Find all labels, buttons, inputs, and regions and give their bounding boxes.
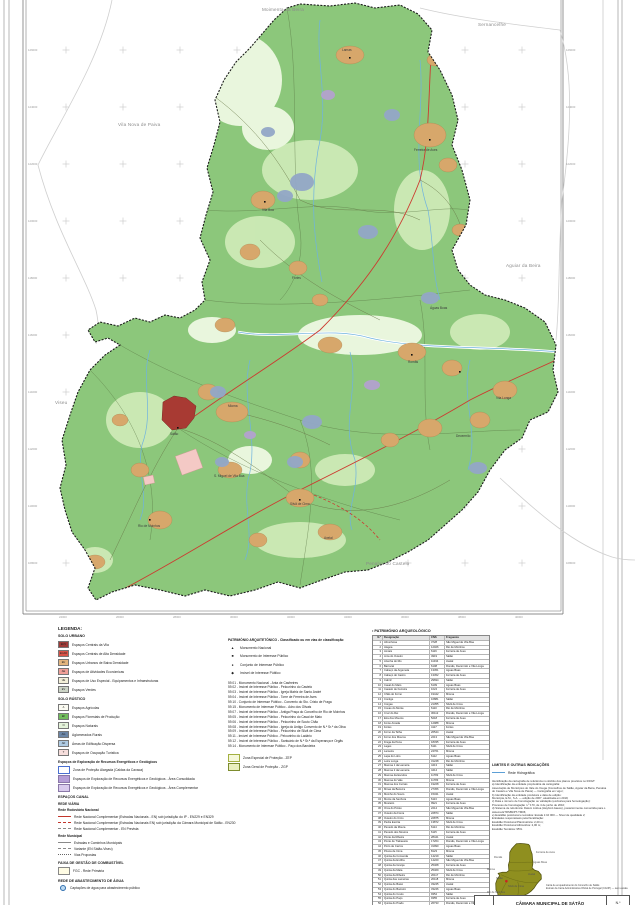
legend-label: Espaços Verdes [72, 688, 96, 692]
heritage-symbol-icon: ● [228, 663, 237, 667]
table-row: 27Mamoa 1 da Lameira4413Sátão [373, 763, 489, 768]
locator-label: Ferreira de Aves [536, 851, 555, 854]
legend-item: Rede Nacional Complementar - EN Prevista [58, 826, 228, 832]
table-row: 51Quinta das Lameiras20118Mioma [373, 877, 489, 882]
legend-item: Rede Hidrográfica [492, 769, 612, 776]
table-row: 44Porto de Carros31990Águas Boas [373, 844, 489, 849]
locator-label: Romãs [494, 856, 502, 859]
table-row: 11Castelo de Ferreira1024Ferreira de Ave… [373, 687, 489, 692]
legend-label: Rede Nacional Complementar - EN Prevista [74, 827, 139, 831]
legend-label: Espaços Agrícolas [72, 706, 99, 710]
legend-item: ECAD Espaços Centrais de Alta Densidade [58, 649, 228, 658]
table-row: 10Casal do Mato6109Águas Boas [373, 683, 489, 688]
legend-solo-rustico-title: SOLO RÚSTICO [58, 697, 228, 701]
water-capture-icon [60, 885, 66, 891]
locator-map [496, 844, 542, 899]
table-row: 35Mosteiro9921Ferreira de Aves [373, 801, 489, 806]
table-row: 29Mamoa da Esculca11782Silvã de Cima [373, 773, 489, 778]
table-row: 45Póvoa de Cima8123Mioma [373, 849, 489, 854]
place-label: Lamas [342, 48, 352, 52]
place-label: Ferreira de Aves [414, 148, 437, 152]
legend-column: LEGENDA: SOLO URBANO ECV Espaços Centrai… [58, 626, 228, 891]
locator-label: Silvã de Cima [508, 885, 524, 888]
heritage-symbol-label: Conjunto de Interesse Público [240, 663, 284, 667]
coord-label-bottom: 28000 [173, 615, 181, 619]
coord-label-right: 124000 [566, 105, 575, 109]
legend-title: LEGENDA: [58, 626, 228, 631]
table-row: 17Eira dos Mouros5218Ferreira de Aves [373, 716, 489, 721]
legend-municipal-title: Rede Municipal [58, 834, 228, 838]
table-row: 19Forles4117Forles [373, 725, 489, 730]
table-row: 47Quinta da Ervilha14220São Miguel de Vi… [373, 858, 489, 863]
coord-label-right: 118000 [566, 276, 575, 280]
heritage-symbol-icon: ◆ [228, 671, 237, 675]
zone-swatch [228, 754, 240, 762]
table-row: 41Penedo dos Mouros6115Ferreira de Aves [373, 830, 489, 835]
table-row: 33Moinho do Souto15341Avelal [373, 792, 489, 797]
road-line-swatch [58, 828, 71, 829]
table-row: 14Corgas21355Silvã de Cima [373, 702, 489, 707]
title-block-logo-cell [475, 896, 494, 905]
archaeology-table: N.º Designação CNS Freguesia 1Abrunhosa3… [372, 635, 490, 905]
table-row: 16Cruz do Rei30112Romãs, Decermilo e Vil… [373, 711, 489, 716]
heritage-symbol-label: Monumento de Interesse Público [240, 654, 288, 658]
coord-label-left: 122000 [28, 162, 37, 166]
legend-item: EU Espaços Urbanos de Baixa Densidade [58, 658, 228, 667]
legend-fgc-title: FAIXA DE GESTÃO DE COMBUSTÍVEL [58, 861, 228, 865]
heritage-symbol-row: ▲ Monumento Nacional [228, 644, 370, 653]
table-row: 54Quinta do Couto9354Sátão [373, 892, 489, 897]
table-row: 48Quinta da Granja25468Ferreira de Aves [373, 863, 489, 868]
table-header: N.º Designação CNS Freguesia [373, 636, 489, 640]
table-row: 4Arca do Outeiro4919Sátão [373, 654, 489, 659]
legend-item: EV Espaços Verdes [58, 685, 228, 694]
coord-label-bottom: 38000 [458, 615, 466, 619]
table-row: 28Mamoa 2 da Lameira4414Sátão [373, 768, 489, 773]
coord-label-right: 122000 [566, 162, 575, 166]
coord-label-bottom: 30000 [230, 615, 238, 619]
legend-swatch: ECAD [58, 650, 69, 657]
limits-column: LIMITES E OUTRAS INDICAÇÕES Rede Hidrogr… [492, 763, 612, 831]
table-row: 1Abrunhosa3728São Miguel de Vila Boa [373, 640, 489, 645]
neighbor-label: Sernancelhe [478, 22, 506, 27]
locator-label: Avelal [528, 873, 535, 876]
road-line-swatch [58, 848, 71, 849]
archaeology-title: • PATRIMÓNIO ARQUEOLÓGICO [372, 629, 490, 633]
heritage-zone-row: Zona Especial de Proteção - ZEP [228, 754, 370, 763]
coord-label-right: 112000 [566, 447, 575, 451]
legend-swatch [58, 784, 70, 792]
road-line-swatch [58, 854, 71, 855]
legend-swatch: A [58, 704, 69, 711]
table-row: 38Outeiro do Circo22875Mioma [373, 816, 489, 821]
heritage-symbol-row: ■ Monumento de Interesse Público [228, 652, 370, 661]
legend-label: Espaços de Uso Especial - Equipamentos e… [72, 679, 158, 683]
legend-label: Rede Nacional Complementar (Estradas Nac… [74, 821, 235, 825]
legend-label: Variante (EN Sátão-Viseu) [74, 847, 113, 851]
legend-item: A Espaços Agrícolas [58, 703, 228, 712]
heritage-title: PATRIMÓNIO ARQUITETÓNICO - Classificado … [228, 638, 370, 642]
title-block-number-cell: N.º [606, 896, 629, 905]
legend-item: Vias Propostas [58, 852, 228, 858]
table-row: 40Penedo da Moura6114Rio de Moinhos [373, 825, 489, 830]
table-row: 8Cabeço do Castro13452Ferreira de Aves [373, 673, 489, 678]
legend-swatch [58, 867, 70, 875]
cartography-note-line: Exatidão Temática: 95%. [492, 828, 610, 831]
legend-label: Espaços Urbanos de Baixa Densidade [72, 661, 128, 665]
table-row: 36Orca do Picoto2214São Miguel de Vila B… [373, 806, 489, 811]
table-row: 53Quinta do Barreiro33246Águas Boas [373, 887, 489, 892]
legend-item: Espaços de Exploração de Recursos Energé… [58, 783, 228, 792]
coord-label-bottom: 34000 [344, 615, 352, 619]
legend-canal-title: ESPAÇOS CANAL [58, 795, 228, 799]
zone-label: Zona Especial de Proteção - ZEP [243, 756, 292, 760]
legend-swatch: T [58, 749, 69, 756]
legend-label: Espaços Centrais de Alta Densidade [72, 652, 126, 656]
place-label: Decermilo [456, 434, 470, 438]
legend-label: Rede Nacional Complementar (Estradas Nac… [74, 815, 214, 819]
table-row: 13Contige16881Sátão [373, 697, 489, 702]
coord-label-left: 126000 [28, 48, 37, 52]
coord-label-left: 114000 [28, 390, 37, 394]
table-row: 2Alagoa12026Rio de Moinhos [373, 645, 489, 650]
legend-swatch [58, 775, 70, 783]
table-row: 46Quinta da Comenda14219Sátão [373, 854, 489, 859]
legend-swatch: ECV [58, 641, 69, 648]
legend-swatch: AG [58, 731, 69, 738]
table-row: 52Quinta de Baixo33245Avelal [373, 882, 489, 887]
table-row: 7Cabeço da Argemela13451Águas Boas [373, 668, 489, 673]
coord-label-right: 116000 [566, 333, 575, 337]
table-row: 31Mamoa dos Currais19228Ferreira de Aves [373, 782, 489, 787]
locator-caption: Carta de enquadramento do Concelho de Sá… [546, 884, 636, 890]
legend-label: Espaços de Atividades Económicas [72, 670, 124, 674]
table-row: 26Leira Longa31248Rio de Moinhos [373, 759, 489, 764]
legend-swatch: AD [58, 740, 69, 747]
coord-label-bottom: 24000 [59, 615, 67, 619]
neighbor-label: Viseu [55, 400, 67, 405]
road-line-swatch [58, 816, 71, 817]
legend-label: Espaços de Exploração de Recursos Energé… [73, 786, 198, 790]
locator-label: Águas Boas [533, 861, 547, 864]
heritage-symbol-label: Imóvel de Interesse Público [240, 671, 281, 675]
coord-label-left: 112000 [28, 447, 37, 451]
table-row: 9Cabriz29694Sátão [373, 678, 489, 683]
table-row: 32Minas da Bezerra27456Romãs, Decermilo … [373, 787, 489, 792]
legend-label: FGC - Rede Primária [73, 869, 104, 873]
coord-label-right: 126000 [566, 48, 575, 52]
table-row: 50Quinta da Ribeira20117Rio de Moinhos [373, 873, 489, 878]
locator-label: Sátão [496, 877, 503, 880]
table-row: 20Forno da Telha26544Avelal [373, 730, 489, 735]
table-row: 6Barrocal6108Romãs, Decermilo e Vila Lon… [373, 664, 489, 669]
limits-title: LIMITES E OUTRAS INDICAÇÕES [492, 763, 612, 767]
place-label: Vila Boa [262, 208, 274, 212]
table-row: 25Lapa do Lobo6112Águas Boas [373, 754, 489, 759]
legend-swatch: AE [58, 668, 69, 675]
coord-label-right: 114000 [566, 390, 575, 394]
legend-label: Rede Hidrográfica [508, 771, 535, 775]
legend-item: AE Espaços de Atividades Económicas [58, 667, 228, 676]
table-row: 3Amiais6116Ferreira de Aves [373, 649, 489, 654]
coord-label-bottom: 26000 [116, 615, 124, 619]
zone-label: Zona Geral de Proteção - ZGP [243, 765, 288, 769]
place-label: S. Miguel de Vila Boa [214, 474, 244, 478]
coord-label-left: 118000 [28, 276, 37, 280]
neighbor-label: Vila Nova de Paiva [118, 122, 160, 127]
locator-label: Mioma [487, 868, 495, 871]
legend-item: N Espaços Naturais [58, 721, 228, 730]
legend-item: ECV Espaços Centrais da Vila [58, 640, 228, 649]
legend-swatch: UE [58, 677, 69, 684]
table-row: 34Monte da Senhora6113Águas Boas [373, 797, 489, 802]
legend-item: AG Aglomerados Rurais [58, 730, 228, 739]
zone-swatch [228, 763, 240, 771]
table-row: 43Ponte de Trabassós17264Romãs, Decermil… [373, 839, 489, 844]
legend-label: Vias Propostas [74, 853, 96, 857]
legend-label: Áreas de Edificação Dispersa [72, 742, 115, 746]
table-row: 56Quinta do Prado26733Romãs, Decermilo e… [373, 901, 489, 905]
legend-item: Captações de água para abastecimento púb… [58, 885, 228, 891]
road-line-swatch [58, 822, 71, 823]
legend-item: Espaços de Exploração de Recursos Energé… [58, 774, 228, 783]
legend-energia-title: Espaços de Exploração de Recursos Energé… [58, 760, 228, 764]
table-row: 15Covas do Monte6110Rio de Moinhos [373, 706, 489, 711]
legend-label: Espaços de Exploração de Recursos Energé… [73, 777, 195, 781]
heritage-symbol-row: ◆ Imóvel de Interesse Público [228, 669, 370, 678]
heritage-symbol-icon: ▲ [228, 646, 237, 650]
road-line-swatch [58, 842, 71, 843]
legend-label: Espaços Centrais da Vila [72, 643, 109, 647]
coord-label-left: 124000 [28, 105, 37, 109]
coord-label-left: 120000 [28, 219, 37, 223]
coord-label-right: 108000 [566, 561, 575, 565]
table-row: 39Pedra Escrita13872Silvã de Cima [373, 820, 489, 825]
legend-label: Estradas e Caminhos Municipais [74, 841, 122, 845]
legend-swatch [58, 766, 70, 774]
title-block-org: CÂMARA MUNICIPAL DE SÁTÃO [494, 896, 606, 905]
legend-solo-urbano-title: SOLO URBANO [58, 634, 228, 638]
locator-label: Rio de Moinhos [487, 891, 505, 894]
coord-label-left: 108000 [28, 561, 37, 565]
coord-label-bottom: 40000 [515, 615, 523, 619]
legend-item: Zona de Proteção Alargada (Caldas da Cav… [58, 765, 228, 774]
table-row: 23Lages6111Silvã de Cima [373, 744, 489, 749]
table-row: 42Ponte da Ribeira28441Avelal [373, 835, 489, 840]
heritage-zone-row: Zona Geral de Proteção - ZGP [228, 763, 370, 772]
legend-item: EF Espaços Florestais de Produção [58, 712, 228, 721]
legend-item: FGC - Rede Primária [58, 867, 228, 876]
legend-label: Captações de água para abastecimento púb… [70, 886, 140, 890]
map-sheet: Moimenta da Beira Sernancelhe Vila Nova … [0, 0, 640, 905]
coord-label-bottom: 36000 [401, 615, 409, 619]
place-label: Sátão [170, 432, 178, 436]
table-row: 55Quinta do Paço9355Ferreira de Aves [373, 896, 489, 901]
title-block: CÂMARA MUNICIPAL DE SÁTÃO N.º [474, 895, 630, 905]
place-label: Forles [292, 276, 301, 280]
legend-item: T Espaços de Ocupação Turística [58, 748, 228, 757]
place-label: Avelal [324, 536, 333, 540]
table-row: 18Fonte Arcada12988Mioma [373, 721, 489, 726]
heritage-symbol-row: ● Conjunto de Interesse Público [228, 661, 370, 670]
heritage-column: PATRIMÓNIO ARQUITETÓNICO - Classificado … [228, 638, 370, 772]
coord-label-left: 110000 [28, 504, 37, 508]
place-label: Mioma [228, 404, 238, 408]
legend-label: Espaços de Ocupação Turística [72, 751, 119, 755]
table-row: 12Chão do Forno19442Mioma [373, 692, 489, 697]
table-row: 5Azenha do Rio11034Avelal [373, 659, 489, 664]
table-row: 22Fraga da Pena18335Ferreira de Aves [373, 740, 489, 745]
legend-swatch: EU [58, 659, 69, 666]
legend-swatch: N [58, 722, 69, 729]
hydro-line-swatch [492, 772, 505, 773]
place-label: Romãs [408, 360, 418, 364]
legend-label: Zona de Proteção Alargada (Caldas da Cav… [73, 768, 143, 772]
legend-agua-title: REDE DE ABASTECIMENTO DE ÁGUA [58, 879, 228, 883]
legend-item: AD Áreas de Edificação Dispersa [58, 739, 228, 748]
legend-label: Aglomerados Rurais [72, 733, 102, 737]
legend-nacional-title: Rede Rodoviária Nacional [58, 808, 228, 812]
place-label: Silvã de Cima [290, 502, 310, 506]
table-row: 49Quinta da Mata25469Silvã de Cima [373, 868, 489, 873]
place-label: Vila Longa [496, 396, 511, 400]
table-row: 24Lameira24761Mioma [373, 749, 489, 754]
coord-label-bottom: 32000 [287, 615, 295, 619]
neighbor-label: Aguiar da Beira [506, 263, 541, 268]
table-row: 30Mamoa do Vale11783Mioma [373, 778, 489, 783]
coord-label-right: 120000 [566, 219, 575, 223]
legend-label: Espaços Naturais [72, 724, 98, 728]
table-row: 21Forno dos Mouros2213São Miguel de Vila… [373, 735, 489, 740]
heritage-symbol-label: Monumento Nacional [240, 646, 271, 650]
legend-swatch: EF [58, 713, 69, 720]
neighbor-label: Moimenta da Beira [262, 7, 304, 12]
archaeology-column: • PATRIMÓNIO ARQUEOLÓGICO N.º Designação… [372, 629, 490, 905]
legend-item: UE Espaços de Uso Especial - Equipamento… [58, 676, 228, 685]
place-label: Rio de Moinhos [138, 524, 160, 528]
coord-label-right: 110000 [566, 504, 575, 508]
legend-viaria-title: REDE VIÁRIA [58, 802, 228, 806]
place-label: Águas Boas [430, 306, 447, 310]
legend-swatch: EV [58, 686, 69, 693]
coord-label-left: 116000 [28, 333, 37, 337]
legend-label: Espaços Florestais de Produção [72, 715, 119, 719]
neighbor-label: Penalva do Castelo [366, 561, 409, 566]
table-row: 37Outeiro da Forca22874Sátão [373, 811, 489, 816]
heritage-symbol-icon: ■ [228, 654, 237, 658]
